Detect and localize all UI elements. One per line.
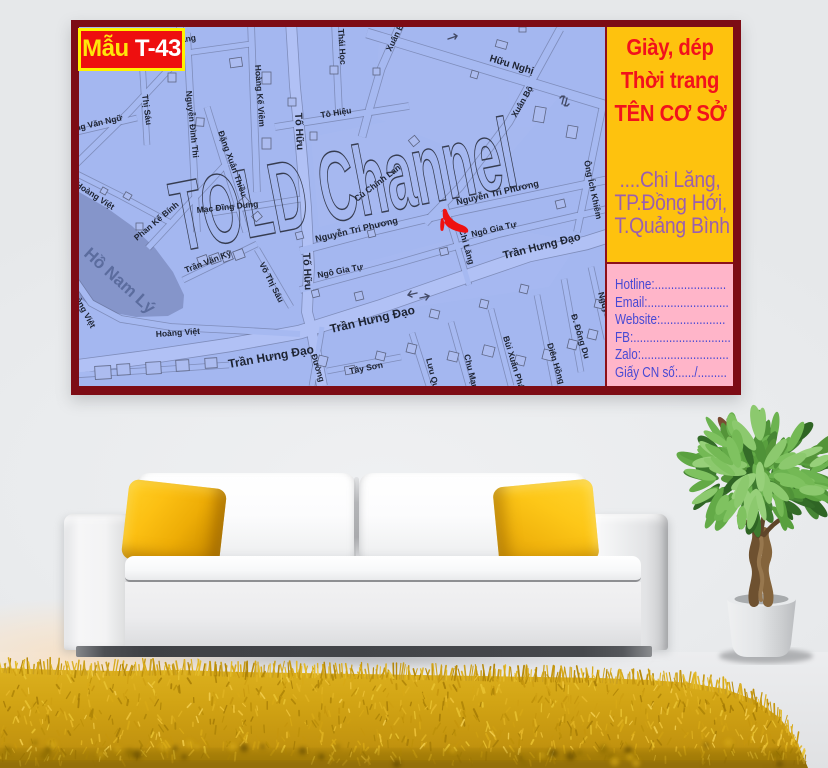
- svg-text:Tố Hữu: Tố Hữu: [300, 253, 314, 291]
